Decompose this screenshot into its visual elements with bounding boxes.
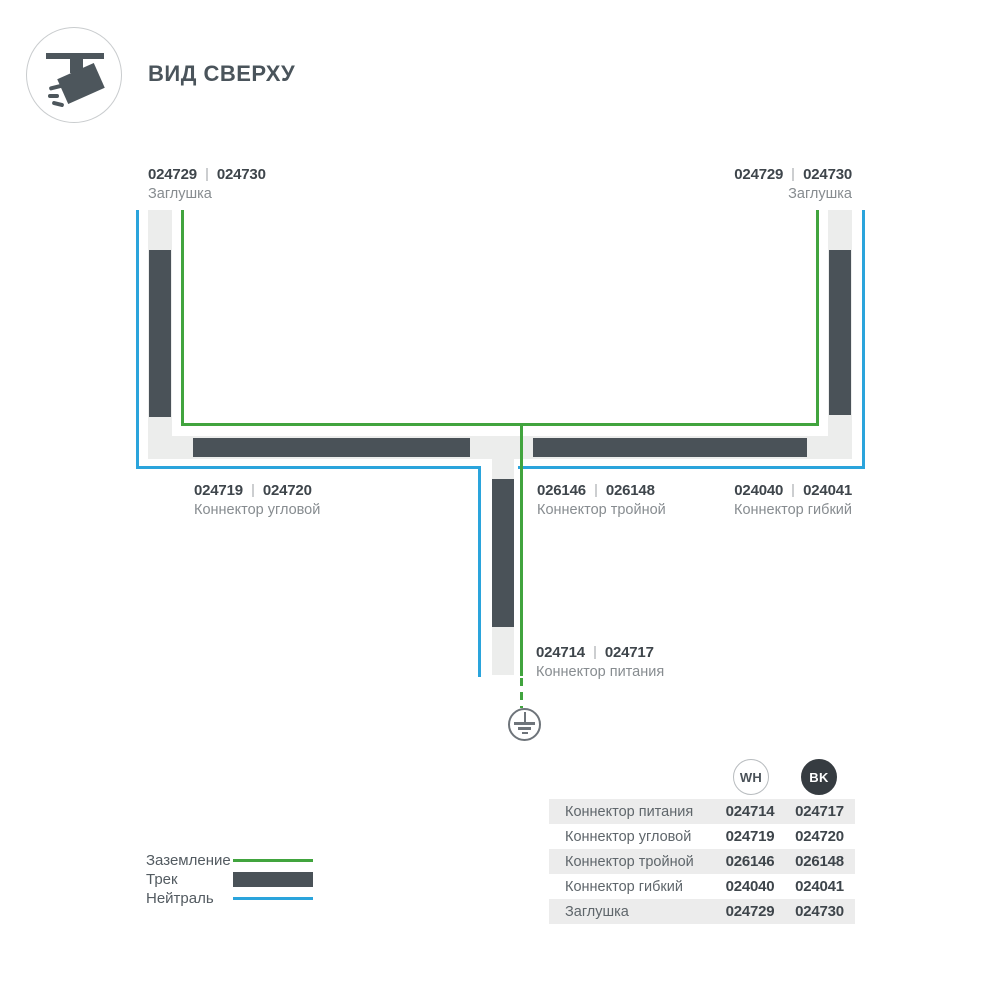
code-wh: 024729: [148, 167, 197, 182]
code-divider: [252, 484, 254, 497]
label-tee-connector: 026146 026148 Коннектор тройной: [537, 483, 666, 518]
code-bk: 024041: [803, 483, 852, 498]
code-divider: [594, 646, 596, 659]
row-code-bk: 024717: [784, 803, 855, 820]
ground-line-branch: [520, 423, 523, 676]
code-divider: [792, 484, 794, 497]
neutral-line-branch: [478, 466, 481, 677]
row-code-wh: 024719: [716, 828, 784, 845]
legend-row-track: Трек: [146, 870, 316, 889]
code-divider: [595, 484, 597, 497]
part-codes: 026146 026148: [537, 483, 666, 498]
table-row: Заглушка 024729 024730: [549, 899, 855, 924]
table-row: Коннектор питания 024714 024717: [549, 799, 855, 824]
ground-symbol-bar: [522, 732, 528, 735]
table-header: WH BK: [549, 759, 855, 799]
part-name: Заглушка: [148, 187, 266, 202]
part-codes: 024040 024041: [734, 483, 852, 498]
part-name: Коннектор тройной: [537, 503, 666, 518]
track-swatch: [233, 872, 313, 887]
top-view-icon: [26, 27, 122, 123]
part-codes: 024719 024720: [194, 483, 320, 498]
earth-ground-symbol: [508, 708, 541, 741]
row-part-name: Коннектор тройной: [549, 854, 716, 870]
neutral-line-bottom-right: [518, 466, 865, 469]
ground-symbol-bar: [518, 727, 531, 730]
table-row: Коннектор тройной 026146 026148: [549, 849, 855, 874]
row-code-bk: 024730: [784, 903, 855, 920]
row-part-name: Коннектор угловой: [549, 829, 716, 845]
code-divider: [792, 168, 794, 181]
row-code-wh: 024040: [716, 878, 784, 895]
row-code-wh: 026146: [716, 853, 784, 870]
track-bar-bottom-left: [193, 438, 470, 457]
row-part-name: Коннектор гибкий: [549, 879, 716, 895]
table-row: Коннектор угловой 024719 024720: [549, 824, 855, 849]
label-power-connector: 024714 024717 Коннектор питания: [536, 645, 664, 680]
page-title: ВИД СВЕРХУ: [148, 61, 295, 87]
track-bar-right: [829, 250, 851, 415]
code-bk: 024720: [263, 483, 312, 498]
ground-line-left: [181, 210, 184, 426]
part-name: Коннектор питания: [536, 665, 664, 680]
color-wh-badge: WH: [733, 759, 769, 795]
code-wh: 024714: [536, 645, 585, 660]
legend-label: Нейтраль: [146, 890, 233, 907]
label-flex-connector: 024040 024041 Коннектор гибкий: [734, 483, 852, 518]
parts-table: WH BK Коннектор питания 024714 024717 Ко…: [549, 759, 855, 924]
row-code-bk: 026148: [784, 853, 855, 870]
ground-symbol-bar: [514, 722, 535, 725]
track-bar-branch: [492, 479, 514, 627]
row-code-bk: 024041: [784, 878, 855, 895]
color-bk-badge: BK: [801, 759, 837, 795]
code-bk: 024730: [217, 167, 266, 182]
row-code-wh: 024729: [716, 903, 784, 920]
diagram-page: ВИД СВЕРХУ 024729 024730 Заглушка 02: [0, 0, 1000, 1000]
spotlight-lamp-icon-part: [57, 63, 105, 104]
code-wh: 024729: [734, 167, 783, 182]
neutral-line-right: [862, 210, 865, 469]
light-ray-icon: [52, 101, 65, 108]
row-code-bk: 024720: [784, 828, 855, 845]
code-divider: [206, 168, 208, 181]
legend-label: Трек: [146, 871, 233, 888]
legend: Заземление Трек Нейтраль: [146, 851, 316, 908]
code-bk: 024730: [803, 167, 852, 182]
code-wh: 026146: [537, 483, 586, 498]
part-codes: 024729 024730: [734, 167, 852, 182]
ground-line-right: [816, 210, 819, 426]
row-code-wh: 024714: [716, 803, 784, 820]
row-part-name: Коннектор питания: [549, 804, 716, 820]
ground-symbol-stem: [524, 712, 526, 722]
part-name: Коннектор угловой: [194, 503, 320, 518]
label-endcap-left: 024729 024730 Заглушка: [148, 167, 266, 202]
part-name: Коннектор гибкий: [734, 503, 852, 518]
code-wh: 024040: [734, 483, 783, 498]
neutral-line-bottom-left: [136, 466, 479, 469]
part-codes: 024729 024730: [148, 167, 266, 182]
code-bk: 026148: [606, 483, 655, 498]
label-corner-connector: 024719 024720 Коннектор угловой: [194, 483, 320, 518]
track-bar-left: [149, 250, 171, 417]
code-bk: 024717: [605, 645, 654, 660]
neutral-line-swatch: [233, 897, 313, 900]
legend-row-neutral: Нейтраль: [146, 889, 316, 908]
row-part-name: Заглушка: [549, 904, 716, 920]
ground-line-swatch: [233, 859, 313, 862]
ground-line-bottom: [181, 423, 819, 426]
code-wh: 024719: [194, 483, 243, 498]
label-endcap-right: 024729 024730 Заглушка: [734, 167, 852, 202]
legend-label: Заземление: [146, 852, 233, 869]
neutral-line-left: [136, 210, 139, 469]
table-row: Коннектор гибкий 024040 024041: [549, 874, 855, 899]
track-bar-bottom-right: [533, 438, 807, 457]
part-codes: 024714 024717: [536, 645, 664, 660]
legend-row-ground: Заземление: [146, 851, 316, 870]
part-name: Заглушка: [734, 187, 852, 202]
light-ray-icon: [48, 94, 59, 98]
ground-line-dashed: [520, 678, 523, 708]
